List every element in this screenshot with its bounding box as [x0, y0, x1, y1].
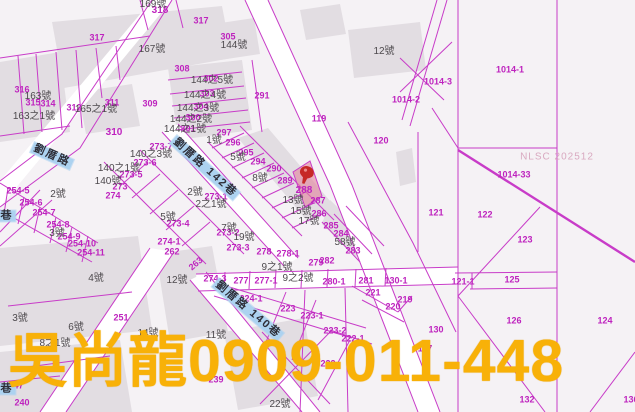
parcel-number-label: 123 — [517, 236, 532, 245]
parcel-number-label: 125 — [504, 276, 519, 285]
house-number-label: 13號 — [282, 196, 303, 206]
parcel-number-label: 254-7 — [32, 209, 55, 218]
house-number-label: 144之4號 — [184, 91, 226, 101]
house-number-label: 140號 — [95, 177, 122, 187]
house-number-label: 1號 — [206, 136, 222, 146]
parcel-number-label: 310 — [106, 128, 123, 138]
parcel-number-label: 121-1 — [451, 278, 474, 287]
parcel-number-label: 1014-33 — [497, 171, 530, 180]
house-number-label: 144之5號 — [191, 76, 233, 86]
parcel-number-label: 254-5 — [6, 187, 29, 196]
house-number-label: 3號 — [12, 314, 28, 324]
house-number-label: 12號 — [166, 276, 187, 286]
parcel-number-label: 254-6 — [19, 199, 42, 208]
parcel-number-label: 279 — [308, 259, 323, 268]
house-number-label: 17號 — [298, 217, 319, 227]
parcel-number-label: 273-3 — [226, 244, 249, 253]
parcel-number-label: 290 — [266, 165, 281, 174]
parcel-number-label: 1014-3 — [424, 78, 452, 87]
parcel-number-label: 122 — [477, 211, 492, 220]
house-number-label: 144號 — [221, 41, 248, 51]
parcel-number-label: 251 — [113, 314, 128, 323]
parcel-number-label: 254-11 — [77, 249, 105, 258]
parcel-number-label: 287 — [310, 197, 325, 206]
parcel-number-label: 317 — [193, 17, 208, 26]
house-number-label: 140之3號 — [130, 150, 172, 160]
parcel-number-label: 280-1 — [322, 278, 345, 287]
house-number-label: 163號 — [25, 92, 52, 102]
parcel-number-label: 263 — [187, 256, 204, 273]
parcel-number-label: 289 — [277, 177, 292, 186]
house-number-label: 8號 — [252, 174, 268, 184]
street-name-label: 劉厝路 — [30, 142, 74, 170]
house-number-label: 2號 — [187, 188, 203, 198]
parcel-number-label: 296 — [225, 139, 240, 148]
parcel-number-label: 262 — [164, 248, 179, 257]
parcel-number-label: 277-1 — [254, 277, 277, 286]
parcel-number-label: 274 — [105, 192, 120, 201]
parcel-number-label: 132 — [519, 396, 534, 405]
parcel-number-label: 223 — [280, 305, 295, 314]
parcel-number-label: 317 — [89, 34, 104, 43]
parcel-number-label: 126 — [506, 317, 521, 326]
house-number-label: 169號 — [140, 0, 167, 10]
house-number-label: 144之3號 — [177, 104, 219, 114]
parcel-number-label: 309 — [142, 100, 157, 109]
house-number-label: 22號 — [269, 400, 290, 410]
house-number-label: 2之1號 — [195, 200, 226, 210]
house-number-label: 167號 — [139, 45, 166, 55]
parcel-number-label: 240 — [14, 399, 29, 408]
house-number-label: 2號 — [50, 190, 66, 200]
house-number-label: 5號 — [160, 213, 176, 223]
house-number-label: 9之2號 — [282, 274, 313, 284]
parcel-number-label: 274-1 — [157, 238, 180, 247]
parcel-number-label: 119 — [312, 115, 327, 124]
house-number-label: 4號 — [88, 274, 104, 284]
house-number-label: 140之1號 — [98, 164, 140, 174]
house-number-label: 9之1號 — [261, 263, 292, 273]
parcel-number-label: 219 — [397, 296, 412, 305]
parcel-number-label: 277 — [233, 277, 248, 286]
parcel-number-label: 221 — [365, 289, 380, 298]
parcel-number-label: 278 — [256, 248, 271, 257]
street-name-label: 巷 — [0, 211, 16, 222]
parcel-number-label: 1014-2 — [392, 96, 420, 105]
parcel-number-label: 294 — [250, 158, 265, 167]
house-number-label: 144之1號 — [164, 125, 206, 135]
house-number-label: 3號 — [49, 229, 65, 239]
parcel-number-label: 124 — [597, 317, 612, 326]
parcel-number-label: 130-1 — [384, 277, 407, 286]
parcel-number-label: 291 — [254, 92, 269, 101]
parcel-number-label: 308 — [174, 65, 189, 74]
cadastral-map-canvas[interactable]: 3173173183163153143123113093103083053023… — [0, 0, 635, 412]
parcel-number-label: 121 — [428, 209, 443, 218]
parcel-number-label: 281 — [358, 277, 373, 286]
parcel-number-label: 120 — [373, 137, 388, 146]
house-number-label: 19號 — [233, 233, 254, 243]
parcel-number-label: 136 — [623, 396, 635, 405]
parcel-number-label: 1014-1 — [496, 66, 524, 75]
house-number-label: 163之1號 — [13, 112, 55, 122]
parcel-number-label: 278-1 — [276, 250, 299, 259]
overlay-contact-text: 吳尚龍0909-011-448 — [8, 332, 564, 391]
parcel-number-label: 223-1 — [300, 312, 323, 321]
house-number-label: 12號 — [373, 47, 394, 57]
house-number-label: 165之1號 — [75, 105, 117, 115]
house-number-label: 58號 — [334, 238, 355, 248]
house-number-label: 5號 — [230, 153, 246, 163]
